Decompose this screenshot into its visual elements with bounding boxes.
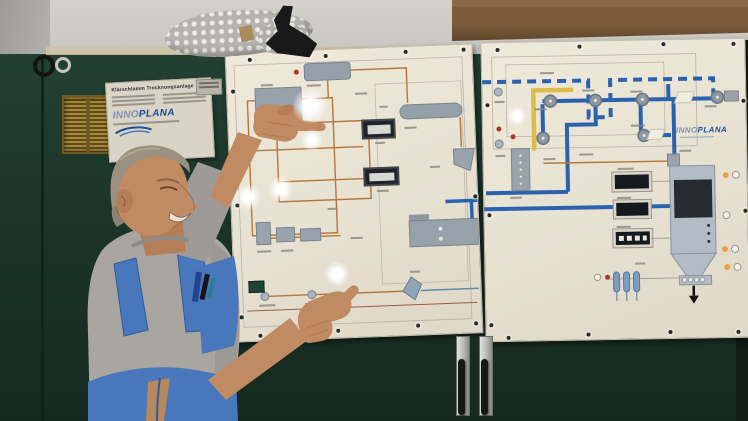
diagram-label-mark <box>543 158 555 160</box>
process-diagram-right <box>481 39 748 342</box>
panel-screw <box>661 42 665 46</box>
glare-spot <box>292 88 328 124</box>
blue-ducts <box>445 200 478 219</box>
diagram-label-mark <box>510 197 522 199</box>
diagram-label-mark <box>617 226 631 228</box>
glare-spot <box>268 176 294 202</box>
panel-screw <box>489 323 493 327</box>
diagram-label-mark <box>582 89 594 91</box>
innoplana-logo-panel: INNOPLANA <box>676 125 727 135</box>
granulate-silo <box>670 165 717 304</box>
scene-photo: Klärschlamm Trocknungsanlage INNOPLANA <box>0 0 748 421</box>
diagram-label-mark <box>617 197 631 199</box>
diagram-label-mark <box>679 150 691 152</box>
diagram-label-mark <box>618 168 634 170</box>
glare-spot <box>507 106 527 126</box>
diagram-label-mark <box>535 108 547 110</box>
panel-screw <box>485 103 489 107</box>
damper-symbol <box>647 129 665 139</box>
diagram-label-mark <box>495 155 505 157</box>
pointing-hand-lower <box>298 285 359 343</box>
glare-spot <box>235 184 261 210</box>
panel-screw <box>668 330 672 334</box>
burner-section <box>494 88 530 192</box>
diagram-label-mark <box>705 105 717 107</box>
sample-bottles <box>594 272 640 302</box>
diagram-label-mark <box>635 262 645 264</box>
door-handle-right <box>479 336 493 416</box>
door-handle-left <box>456 336 470 416</box>
panel-screw <box>496 48 500 52</box>
panel-screw <box>743 209 747 213</box>
damper-symbol <box>674 92 694 103</box>
glare-spot <box>301 129 323 151</box>
panel-screw <box>487 213 491 217</box>
glare-spot <box>324 261 350 287</box>
panel-screw <box>507 336 511 340</box>
panel-screw <box>577 45 581 49</box>
panel-screw <box>731 42 735 46</box>
diagram-label-mark <box>630 91 642 93</box>
diagram-label-mark <box>579 153 593 155</box>
granulate-displays <box>612 171 653 248</box>
panel-screw <box>586 332 590 336</box>
diagram-label-mark <box>631 124 645 126</box>
diagram-label-mark <box>430 166 440 168</box>
mimic-panel-right: INNOPLANA <box>480 38 748 343</box>
technician <box>0 0 420 421</box>
panel-screw <box>741 99 745 103</box>
diagram-label-mark <box>494 101 504 103</box>
panel-screw <box>736 330 740 334</box>
diagram-label-mark <box>540 72 554 74</box>
overall-bib <box>196 256 239 354</box>
chute <box>453 148 475 171</box>
